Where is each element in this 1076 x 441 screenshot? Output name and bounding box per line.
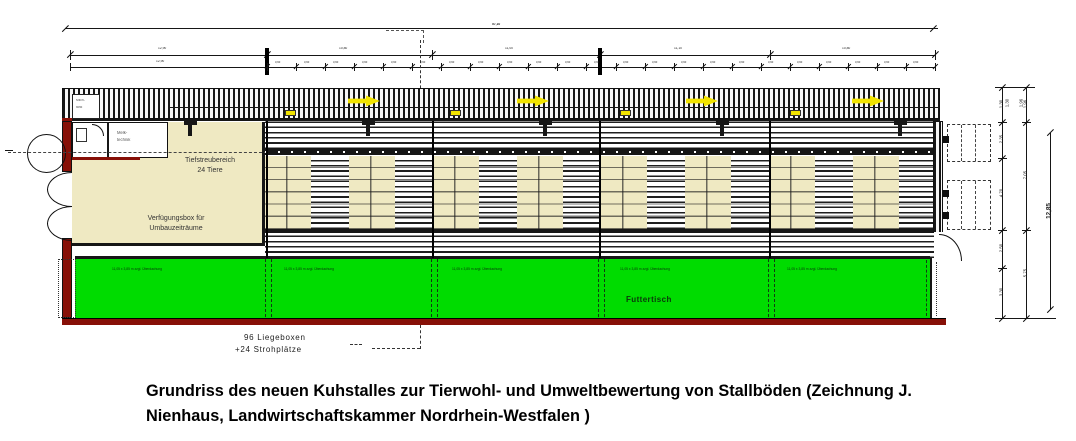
fence-marker [790,110,801,116]
fence-marker [450,110,461,116]
dimension-label: 10,80 [842,47,850,50]
dimension-label-vertical: 7,05 [1024,171,1028,179]
structural-joint-line [432,121,435,258]
dimension-label: 3,60 [391,61,396,64]
dimension-label: 3,60 [681,61,686,64]
dimension-label: 3,60 [333,61,338,64]
planned-cubicle-divider [975,125,976,161]
axis-centerline [8,152,267,153]
laufhof-left-dotted-edge [58,259,76,318]
structural-joint-line [266,121,269,258]
toilet-fixture [76,128,87,142]
laufhof-section-divider [768,259,775,317]
slurry-tank-circle [27,134,66,173]
caption-line2: Nienhaus, Landwirtschaftskammer Nordrhei… [146,404,590,429]
service-room-label-1: Melk- [117,131,127,135]
dimension-label: 3,60 [797,61,802,64]
planned-cubicle-divider [961,125,962,161]
dimension-label-vertical: 5,75 [1024,269,1028,277]
dimension-label: 3,60 [594,61,599,64]
planned-cubicle-square [942,212,949,219]
dimension-label: 3,60 [652,61,657,64]
dimension-label: 3,60 [478,61,483,64]
dimension-label: 3,60 [826,61,831,64]
dimension-label: 12,90 [156,60,164,63]
laufhof-right-dashed-edge [926,260,927,316]
note-leader-stub [350,344,362,345]
axis-end-tick [5,150,13,151]
dimension-label: 11,00 [505,47,513,50]
structural-joint-line [769,121,772,258]
laufhof-section-divider [431,259,438,317]
cubicles-note-line1: 96 Liegeboxen [244,333,306,342]
milk-tank-label-1: Milch- [76,99,85,102]
flex-box-label-2: Umbauzeiträume [124,224,228,233]
deep-litter-bottom-wall [72,243,263,246]
right-measure-dotted-line [936,262,937,316]
laufhof-section-label: 11,05 x 3,85 m zzgl. Überdachung [787,268,837,271]
deep-litter-label-2: 24 Tiere [158,166,262,175]
laufhof-section-divider [265,259,272,317]
overall-dimension-line [65,28,938,29]
dimension-label: 3,60 [913,61,918,64]
dimension-label: 3,60 [362,61,367,64]
service-room-label-2: technik [117,138,130,142]
feed-strip-midline [170,107,938,108]
fence-marker [285,110,296,116]
flex-box-label-1: Verfügungsbox für [124,214,228,223]
planned-cubicle-square [942,136,949,143]
right-overall-label: 12,85 [1047,203,1052,219]
deep-litter-label-1: Tiefstreubereich [158,156,262,165]
dimension-label: 3,60 [275,61,280,64]
column-post-stem [898,124,901,136]
column-post-stem [188,124,191,136]
dimension-label: 3,60 [449,61,454,64]
feed-drive-strip [62,88,940,119]
overall-dimension-label: 57,10 [492,23,500,26]
dimension-label-vertical: 4,70 [1000,189,1004,197]
planned-cubicle-square [942,190,949,197]
dimension-label-vertical: 2,35 [1000,135,1004,143]
dimension-label: 3,60 [565,61,570,64]
section-cut-line-lower [420,325,421,349]
laufhof-right-border [930,258,932,318]
milk-tank-label-2: tank [76,106,82,109]
planned-cubicle-block-2 [947,180,991,230]
column-post-stem [366,124,369,136]
dimension-label: 11,10 [674,47,682,50]
dimension-label: 3,60 [304,61,309,64]
laufhof-strip [75,258,930,318]
column-post-stem [720,124,723,136]
dimension-label: 10,80 [339,47,347,50]
note-leader-line [372,348,420,349]
dimension-label-vertical: 1,96 [1024,99,1028,107]
service-rooms-underline [72,157,140,160]
dimension-label: 3,60 [710,61,715,64]
dimension-label: 3,60 [420,61,425,64]
laufhof-section-divider [598,259,605,317]
laufhof-section-label: 11,05 x 3,85 m zzgl. Überdachung [620,268,670,271]
dimension-label: 3,60 [536,61,541,64]
dimension-label: 3,60 [623,61,628,64]
planned-cubicle-divider [975,181,976,229]
laufhof-section-label: 11,05 x 3,85 m zzgl. Überdachung [284,268,334,271]
entrance-door-arc [47,189,72,207]
dimension-label: 3,60 [507,61,512,64]
structural-joint-line [599,121,602,258]
right-door-arc [939,234,962,261]
section-marker-bracket [386,30,424,43]
dimension-label-vertical: 3,30 [1000,288,1004,296]
entrance-door-arc [47,206,72,224]
right-overall-line [1050,133,1051,310]
laufhof-section-label: 11,05 x 3,85 m zzgl. Überdachung [452,268,502,271]
planned-cubicle-divider [961,181,962,229]
dimension-tick [70,63,71,71]
fence-marker [620,110,631,116]
entrance-door-arc [47,172,72,190]
laufhof-top-border [75,256,930,259]
dimension-label-vertical: 1,30 [1000,99,1004,107]
dimension-tick-slash [1047,306,1054,313]
planned-cubicle-block-1 [947,124,991,162]
caption-line1: Grundriss des neuen Kuhstalles zur Tierw… [146,379,912,404]
dimension-label: 12,90 [158,47,166,50]
bottom-wall [62,318,946,325]
feed-table-label: Futtertisch [626,295,672,304]
laufhof-section-label: 11,05 x 3,85 m zzgl. Überdachung [112,268,162,271]
dimension-chain-line-2 [70,67,935,68]
dimension-label: 3,60 [884,61,889,64]
dimension-label: 3,60 [739,61,744,64]
barn-floorplan-drawing: 57,10 12,90 Milch- tank Melk- technik Ti… [0,0,1076,441]
dimension-label: 3,60 [855,61,860,64]
dimension-label-vertical: 2,50 [1000,244,1004,252]
dimension-label: 3,60 [768,61,773,64]
dimension-chain-line-1 [70,55,935,56]
column-post-stem [543,124,546,136]
cubicles-note-line2: +24 Strohplätze [235,345,302,354]
entrance-door-arc [47,223,72,241]
right-top-label-1: 1,30 [1006,99,1010,107]
